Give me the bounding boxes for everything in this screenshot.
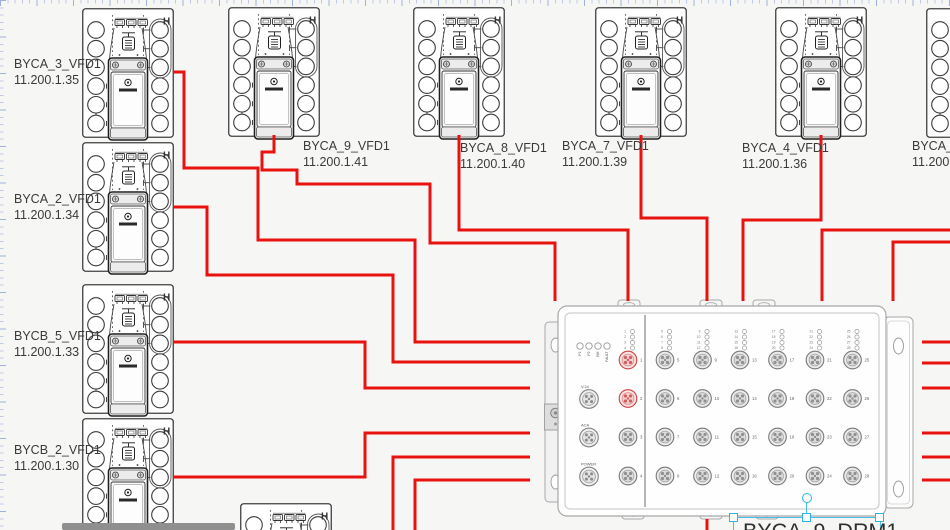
device-name: BYCA_9_VFD1: [303, 139, 390, 155]
port-number: 19: [790, 435, 795, 440]
cable-bycb2-vfd1[interactable]: [174, 433, 530, 477]
port-led-number: 25: [847, 330, 851, 334]
vfd-device-symbol[interactable]: H: [927, 9, 950, 140]
port-led-number: 15: [734, 341, 738, 345]
port-number: 13: [752, 358, 757, 363]
h-marker-icon: H: [309, 16, 316, 27]
selection-handle-top-middle[interactable]: [802, 513, 811, 522]
device-label-byca5[interactable]: BYCA_5_ 11.200.1.: [912, 139, 950, 170]
device-ip: 11.200.1.41: [303, 155, 390, 171]
port-number: 16: [752, 474, 757, 479]
port-led-number: 12: [697, 346, 701, 350]
port-led-number: 5: [661, 330, 663, 334]
device-label-byca4[interactable]: BYCA_4_VFD1 11.200.1.36: [742, 141, 829, 172]
port-number: 27: [865, 435, 870, 440]
vfd-device-symbol[interactable]: H: [596, 8, 687, 139]
device-label-byca7[interactable]: BYCA_7_VFD1 11.200.1.39: [562, 139, 649, 170]
port-led-number: 3: [624, 341, 626, 345]
port-number: 15: [752, 435, 757, 440]
status-led-label: RM: [596, 351, 600, 356]
port-led-number: 2: [624, 335, 626, 339]
port-led-number: 16: [734, 346, 738, 350]
port-led-number: 28: [847, 346, 851, 350]
drm-device-symbol[interactable]: P1P2RMFAULTV.24ACAPOWER12341234567856789…: [545, 300, 914, 519]
device-ip: 11.200.1.: [912, 155, 950, 171]
port-number: 10: [715, 396, 720, 401]
h-marker-icon: H: [163, 17, 170, 28]
horizontal-scrollbar-thumb[interactable]: [62, 523, 235, 530]
port-led-number: 4: [624, 346, 626, 350]
port-led-number: 6: [661, 335, 663, 339]
device-ip: 11.200.1.34: [14, 208, 101, 224]
vfd-device-symbol[interactable]: H: [241, 504, 332, 530]
port-led-number: 26: [847, 335, 851, 339]
left-ruler: [0, 0, 6, 530]
port-led-number: 13: [734, 330, 738, 334]
selection-handle-top-right[interactable]: [875, 513, 884, 522]
status-led-label: P2: [587, 351, 591, 355]
cable-byca7-vfd1[interactable]: [641, 135, 707, 301]
device-label-byca8[interactable]: BYCA_8_VFD1 11.200.1.40: [460, 141, 547, 172]
h-marker-icon: H: [676, 16, 683, 27]
vfd-device-symbol[interactable]: H: [229, 8, 320, 139]
port-number: 18: [790, 396, 795, 401]
device-name: BYCB_5_VFD1: [14, 329, 101, 345]
port-led-number: 18: [772, 335, 776, 339]
device-name: BYCA_8_VFD1: [460, 141, 547, 157]
device-label-byca3[interactable]: BYCA_3_VFD1 11.200.1.35: [14, 57, 101, 88]
port-led-number: 23: [809, 341, 813, 345]
status-led-label: FAULT: [605, 352, 609, 362]
h-marker-icon: H: [163, 293, 170, 304]
port-led-number: 1: [624, 330, 626, 334]
port-number: 11: [715, 435, 720, 440]
device-name: BYCA_2_VFD1: [14, 192, 101, 208]
port-number: 21: [827, 358, 832, 363]
device-ip: 11.200.1.40: [460, 157, 547, 173]
port-led-number: 24: [809, 346, 813, 350]
port-number: 24: [827, 474, 832, 479]
vfd-device-symbol[interactable]: H: [83, 419, 174, 530]
port-number: 25: [865, 358, 870, 363]
port-led-number: 7: [661, 341, 663, 345]
h-marker-icon: H: [321, 512, 328, 523]
device-name: BYCA_4_VFD1: [742, 141, 829, 157]
port-led-number: 8: [661, 346, 663, 350]
port-number: 26: [865, 396, 870, 401]
port-number: 22: [827, 396, 832, 401]
device-label-bycb5[interactable]: BYCB_5_VFD1 11.200.1.33: [14, 329, 101, 360]
port-led-number: 21: [809, 330, 813, 334]
selection-box[interactable]: BYCA_9_DRM1: [733, 517, 881, 530]
port-number: 20: [790, 474, 795, 479]
device-label-byca2[interactable]: BYCA_2_VFD1 11.200.1.34: [14, 192, 101, 223]
h-marker-icon: H: [163, 427, 170, 438]
port-led-number: 14: [734, 335, 738, 339]
vfd-device-symbol[interactable]: H: [776, 8, 867, 139]
device-name: BYCA_5_: [912, 139, 950, 155]
h-marker-icon: H: [163, 151, 170, 162]
device-ip: 11.200.1.39: [562, 155, 649, 171]
port-led-number: 17: [772, 330, 776, 334]
rotation-handle[interactable]: [802, 493, 812, 503]
connector-label: ACA: [581, 423, 590, 428]
cable-bycb5-vfd1[interactable]: [174, 342, 530, 388]
cable-from-right-b[interactable]: [893, 242, 950, 301]
diagram-canvas[interactable]: HHHHHHHHHHP1P2RMFAULTV.24ACAPOWER1234123…: [0, 0, 950, 530]
port-led-number: 20: [772, 346, 776, 350]
status-led-label: P1: [578, 351, 582, 355]
device-ip: 11.200.1.35: [14, 73, 101, 89]
connector-label: V.24: [581, 384, 590, 389]
port-number: 14: [752, 396, 757, 401]
connector-label: POWER: [581, 462, 596, 467]
device-name: BYCA_7_VFD1: [562, 139, 649, 155]
device-ip: 11.200.1.30: [14, 459, 101, 475]
selection-handle-top-left[interactable]: [729, 513, 738, 522]
device-ip: 11.200.1.36: [742, 157, 829, 173]
port-number: 12: [715, 474, 720, 479]
device-ip: 11.200.1.33: [14, 345, 101, 361]
port-led-number: 11: [697, 341, 701, 345]
top-ruler: [0, 0, 950, 6]
cable-from-bottom-b[interactable]: [415, 480, 530, 530]
device-name: BYCB_2_VFD1: [14, 443, 101, 459]
device-name: BYCA_3_VFD1: [14, 57, 101, 73]
h-marker-icon: H: [856, 16, 863, 27]
port-led-number: 22: [809, 335, 813, 339]
device-label-bycb2[interactable]: BYCB_2_VFD1 11.200.1.30: [14, 443, 101, 474]
device-label-byca9[interactable]: BYCA_9_VFD1 11.200.1.41: [303, 139, 390, 170]
port-number: 23: [827, 435, 832, 440]
port-led-number: 9: [699, 330, 701, 334]
port-number: 28: [865, 474, 870, 479]
port-led-number: 19: [772, 341, 776, 345]
port-number: 17: [790, 358, 795, 363]
h-marker-icon: H: [494, 16, 501, 27]
vfd-device-symbol[interactable]: H: [414, 8, 505, 139]
port-led-number: 27: [847, 341, 851, 345]
diagram-surface[interactable]: HHHHHHHHHHP1P2RMFAULTV.24ACAPOWER1234123…: [0, 0, 950, 530]
port-led-number: 10: [697, 335, 701, 339]
